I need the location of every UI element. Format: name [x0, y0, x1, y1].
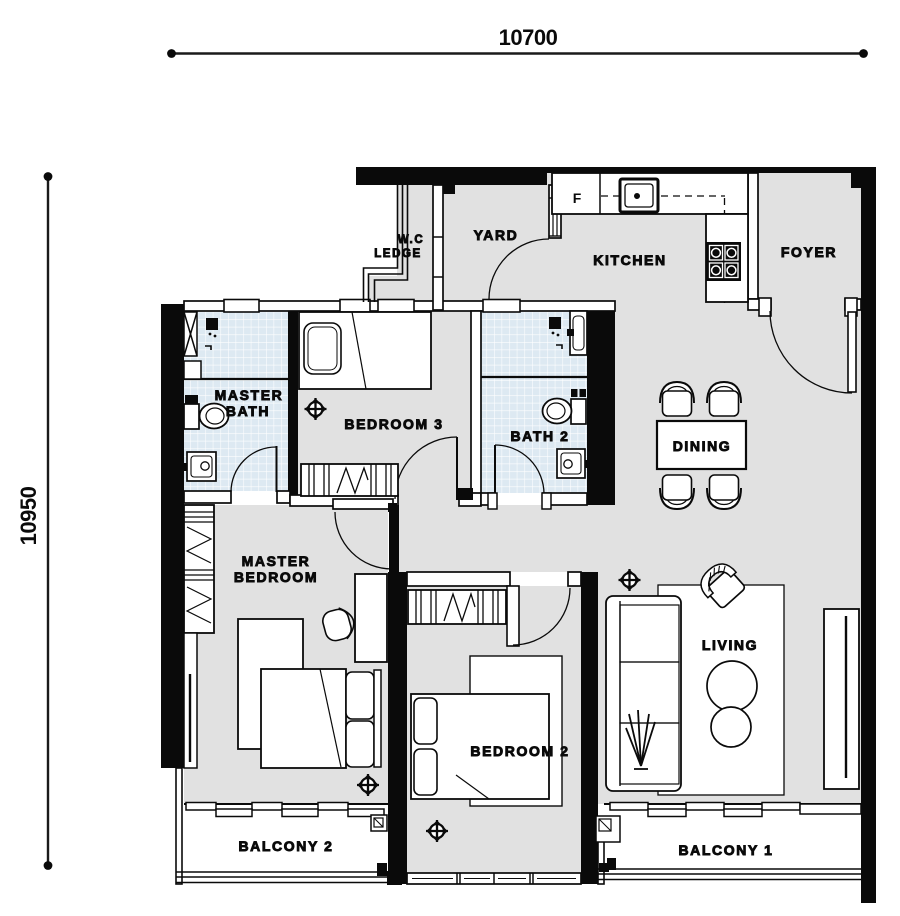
svg-text:BALCONY 1: BALCONY 1 — [678, 842, 773, 858]
svg-text:BATH: BATH — [226, 403, 270, 419]
svg-text:KITCHEN: KITCHEN — [593, 252, 666, 268]
svg-text:BATH 2: BATH 2 — [510, 428, 569, 444]
svg-text:F: F — [573, 190, 582, 206]
svg-text:BEDROOM 2: BEDROOM 2 — [470, 743, 569, 759]
svg-text:BALCONY 2: BALCONY 2 — [238, 838, 333, 854]
svg-text:10700: 10700 — [499, 25, 558, 50]
svg-text:MASTER: MASTER — [215, 387, 284, 403]
svg-text:W.C: W.C — [398, 234, 425, 246]
svg-text:BEDROOM: BEDROOM — [234, 569, 318, 585]
svg-text:DINING: DINING — [673, 438, 732, 454]
svg-text:BEDROOM 3: BEDROOM 3 — [344, 416, 443, 432]
svg-text:FOYER: FOYER — [781, 244, 837, 260]
svg-text:LIVING: LIVING — [702, 637, 758, 653]
svg-text:YARD: YARD — [474, 227, 519, 243]
svg-text:MASTER: MASTER — [242, 553, 311, 569]
svg-text:LEDGE: LEDGE — [374, 248, 422, 260]
svg-text:10950: 10950 — [16, 486, 41, 545]
